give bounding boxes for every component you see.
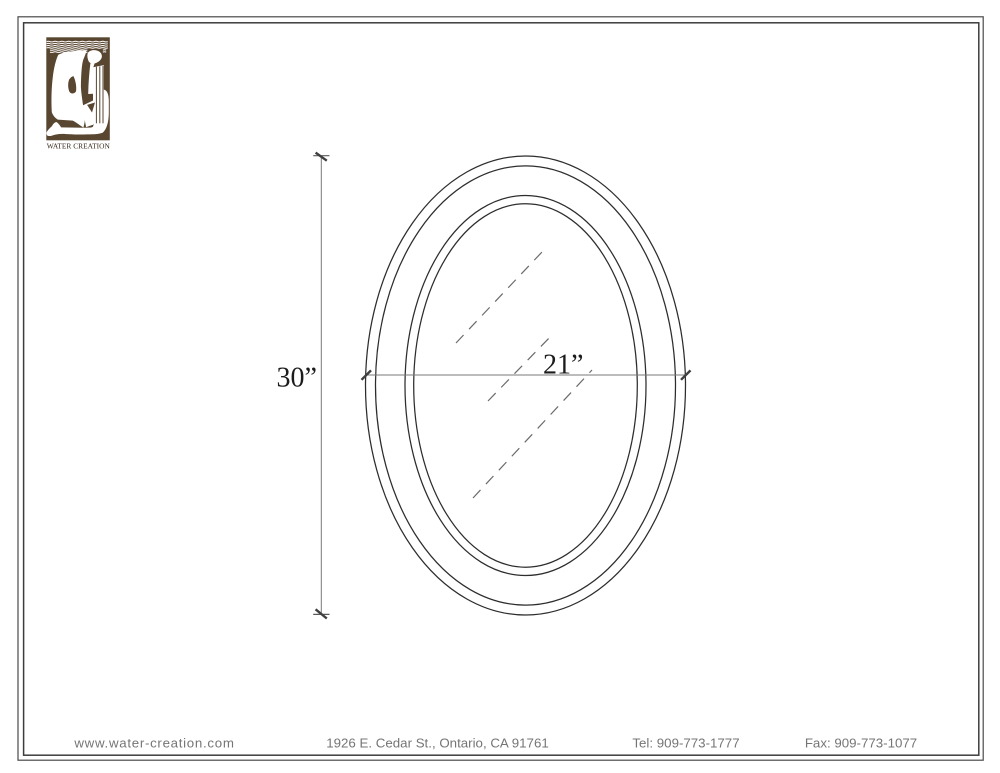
svg-text:1926 E. Cedar St., Ontario, CA: 1926 E. Cedar St., Ontario, CA 91761: [326, 736, 549, 751]
svg-text:WATER CREATION: WATER CREATION: [47, 142, 111, 151]
svg-text:21”: 21”: [543, 350, 583, 381]
svg-text:Tel: 909-773-1777: Tel: 909-773-1777: [632, 736, 739, 751]
svg-text:Fax: 909-773-1077: Fax: 909-773-1077: [805, 736, 917, 751]
svg-text:www.water-creation.com: www.water-creation.com: [73, 736, 234, 751]
svg-text:30”: 30”: [277, 363, 317, 394]
